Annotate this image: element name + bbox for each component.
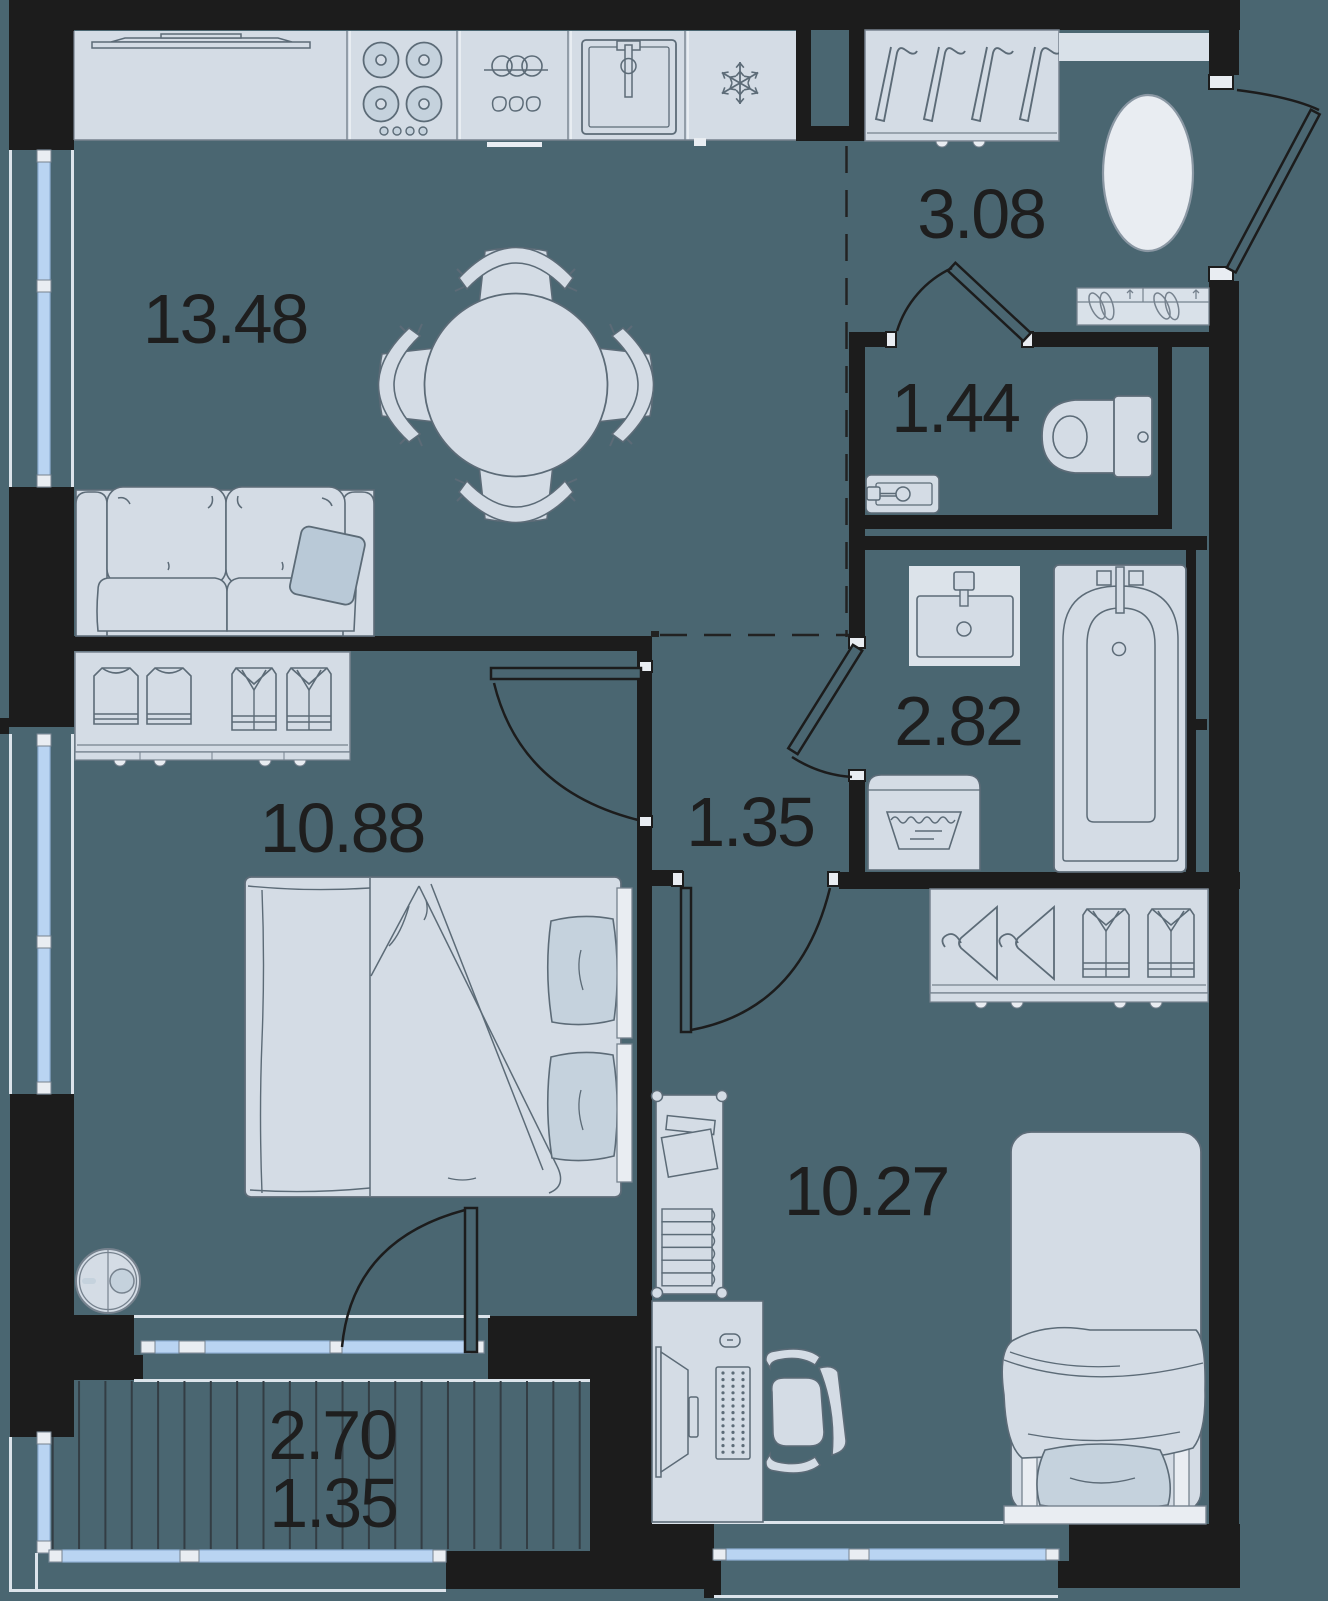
svg-text:2.70: 2.70 [268, 1396, 396, 1474]
svg-text:10.88: 10.88 [260, 789, 424, 867]
svg-text:10.27: 10.27 [784, 1152, 948, 1230]
svg-text:1.35: 1.35 [269, 1464, 396, 1542]
svg-text:1.44: 1.44 [891, 369, 1019, 447]
svg-text:3.08: 3.08 [917, 175, 1044, 253]
svg-text:2.82: 2.82 [894, 682, 1021, 760]
svg-text:1.35: 1.35 [686, 783, 813, 861]
svg-text:13.48: 13.48 [143, 280, 307, 358]
